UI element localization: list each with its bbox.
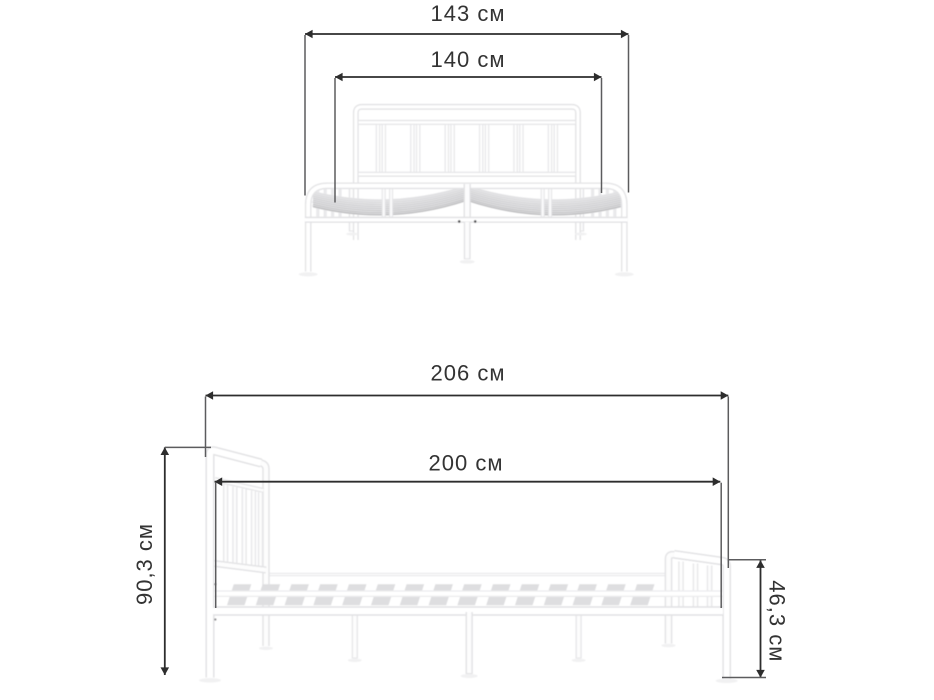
- svg-text:140 см: 140 см: [431, 47, 506, 72]
- svg-text:46,3 см: 46,3 см: [765, 580, 790, 662]
- svg-text:143 см: 143 см: [431, 1, 506, 26]
- svg-text:206 см: 206 см: [431, 361, 506, 386]
- svg-text:90,3 см: 90,3 см: [132, 523, 157, 605]
- svg-text:200 см: 200 см: [429, 451, 504, 476]
